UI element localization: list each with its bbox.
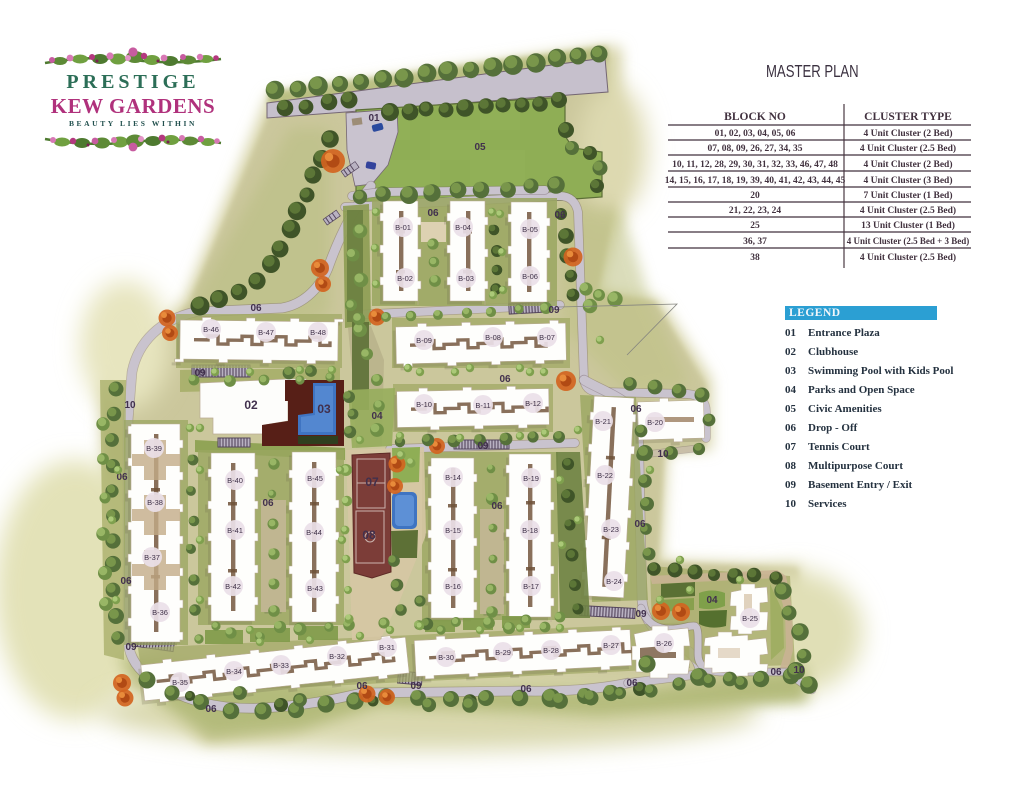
svg-text:B-38: B-38	[147, 498, 163, 507]
svg-text:BLOCK NO: BLOCK NO	[724, 111, 786, 123]
svg-text:7 Unit Cluster (1 Bed): 7 Unit Cluster (1 Bed)	[863, 190, 952, 201]
svg-text:25: 25	[750, 221, 760, 231]
svg-text:B-08: B-08	[485, 333, 501, 342]
svg-text:10: 10	[657, 449, 669, 460]
svg-text:4 Unit Cluster (2.5 Bed): 4 Unit Cluster (2.5 Bed)	[860, 205, 956, 216]
svg-text:09: 09	[477, 441, 489, 452]
svg-text:B-10: B-10	[416, 400, 432, 409]
svg-text:4 Unit Cluster (2.5 Bed + 3 Be: 4 Unit Cluster (2.5 Bed + 3 Bed)	[847, 236, 969, 246]
svg-text:B-30: B-30	[438, 653, 454, 662]
svg-text:B-27: B-27	[603, 641, 619, 650]
svg-text:21, 22, 23, 24: 21, 22, 23, 24	[729, 206, 782, 216]
svg-text:09: 09	[410, 681, 422, 692]
svg-text:20: 20	[750, 191, 760, 201]
svg-text:06: 06	[770, 667, 782, 678]
svg-text:B-15: B-15	[445, 526, 461, 535]
svg-text:B-37: B-37	[144, 553, 160, 562]
svg-text:B-14: B-14	[445, 473, 461, 482]
svg-text:B-32: B-32	[329, 652, 345, 661]
svg-text:B-16: B-16	[445, 582, 461, 591]
svg-text:B-23: B-23	[603, 525, 619, 534]
svg-text:B-45: B-45	[307, 474, 323, 483]
svg-text:B-41: B-41	[227, 526, 243, 535]
svg-text:B-22: B-22	[597, 471, 613, 480]
svg-text:B-28: B-28	[543, 646, 559, 655]
svg-text:09: 09	[194, 368, 206, 379]
svg-text:09: 09	[125, 642, 137, 653]
svg-text:B-11: B-11	[475, 401, 490, 410]
svg-text:B-44: B-44	[306, 528, 322, 537]
svg-text:10: 10	[793, 665, 805, 676]
svg-text:B-35: B-35	[172, 678, 188, 687]
svg-text:B-12: B-12	[525, 399, 541, 408]
svg-text:14, 15, 16, 17, 18, 19, 39, 40: 14, 15, 16, 17, 18, 19, 39, 40, 41, 42, …	[665, 176, 846, 186]
svg-text:04: 04	[706, 595, 718, 606]
svg-text:B-19: B-19	[523, 474, 539, 483]
svg-text:4 Unit Cluster (2.5 Bed): 4 Unit Cluster (2.5 Bed)	[860, 143, 956, 154]
svg-text:B-47: B-47	[258, 328, 274, 337]
svg-text:09: 09	[548, 305, 560, 316]
svg-text:CLUSTER TYPE: CLUSTER TYPE	[864, 111, 952, 123]
svg-text:B-20: B-20	[647, 418, 663, 427]
svg-text:04: 04	[371, 411, 383, 422]
svg-text:38: 38	[750, 253, 760, 263]
svg-text:4 Unit Cluster (3 Bed): 4 Unit Cluster (3 Bed)	[863, 175, 952, 186]
svg-text:10, 11, 12, 28, 29, 30, 31, 32: 10, 11, 12, 28, 29, 30, 31, 32, 33, 46, …	[672, 160, 838, 170]
svg-text:B-21: B-21	[595, 417, 611, 426]
svg-text:B-36: B-36	[152, 608, 168, 617]
svg-text:03: 03	[317, 402, 331, 416]
svg-text:B-29: B-29	[495, 648, 511, 657]
svg-text:B-25: B-25	[742, 614, 758, 623]
svg-text:B-09: B-09	[416, 336, 432, 345]
svg-text:B-46: B-46	[203, 325, 219, 334]
svg-text:B-17: B-17	[523, 582, 539, 591]
svg-text:07: 07	[365, 475, 379, 489]
svg-text:13 Unit Cluster (1 Bed): 13 Unit Cluster (1 Bed)	[861, 220, 955, 231]
svg-text:07, 08, 09, 26, 27, 34, 35: 07, 08, 09, 26, 27, 34, 35	[708, 144, 803, 154]
svg-text:06: 06	[491, 501, 503, 512]
svg-text:B-18: B-18	[522, 526, 538, 535]
svg-text:B-26: B-26	[656, 639, 672, 648]
svg-text:06: 06	[356, 681, 368, 692]
svg-text:06: 06	[262, 498, 274, 509]
svg-text:06: 06	[630, 404, 642, 415]
svg-text:06: 06	[520, 684, 532, 695]
svg-text:B-39: B-39	[146, 444, 162, 453]
svg-text:B-48: B-48	[310, 328, 326, 337]
svg-text:10: 10	[124, 400, 136, 411]
svg-text:06: 06	[634, 519, 646, 530]
svg-text:B-24: B-24	[606, 577, 622, 586]
svg-text:4 Unit Cluster (2.5 Bed): 4 Unit Cluster (2.5 Bed)	[860, 252, 956, 263]
svg-text:B-34: B-34	[226, 667, 242, 676]
svg-text:06: 06	[499, 374, 511, 385]
svg-text:02: 02	[244, 398, 258, 412]
svg-text:B-31: B-31	[379, 643, 395, 652]
svg-text:06: 06	[120, 576, 132, 587]
svg-text:06: 06	[250, 303, 262, 314]
svg-text:B-42: B-42	[225, 582, 241, 591]
svg-text:06: 06	[626, 678, 638, 689]
svg-text:09: 09	[635, 609, 647, 620]
svg-text:08: 08	[362, 528, 376, 542]
svg-text:B-43: B-43	[307, 584, 323, 593]
svg-text:B-40: B-40	[227, 476, 243, 485]
svg-text:01, 02, 03, 04, 05, 06: 01, 02, 03, 04, 05, 06	[715, 129, 796, 139]
svg-text:B-07: B-07	[539, 333, 555, 342]
svg-text:B-33: B-33	[273, 661, 289, 670]
svg-text:36, 37: 36, 37	[743, 237, 767, 247]
svg-text:4 Unit Cluster (2 Bed): 4 Unit Cluster (2 Bed)	[863, 128, 952, 139]
svg-text:06: 06	[205, 704, 217, 715]
svg-text:4 Unit Cluster (2 Bed): 4 Unit Cluster (2 Bed)	[863, 159, 952, 170]
